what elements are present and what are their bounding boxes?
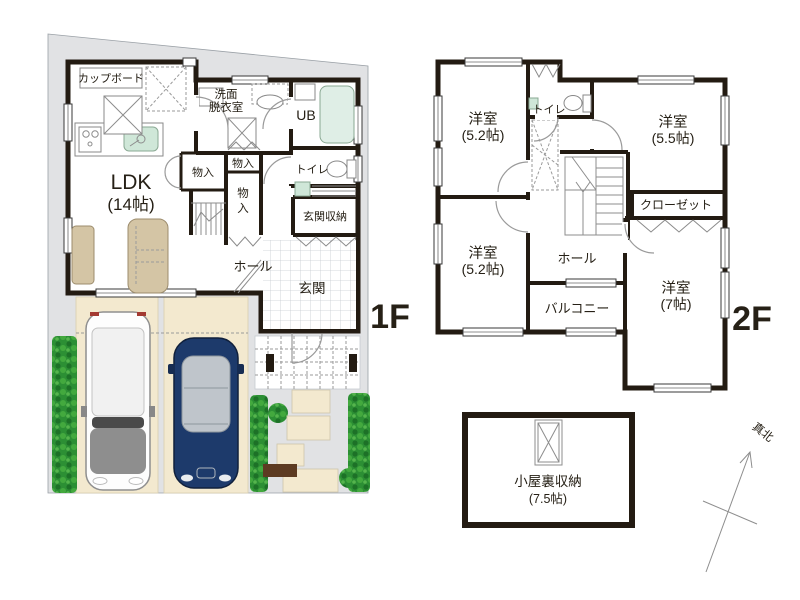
room-label-hall-2f: ホール <box>557 251 596 266</box>
room-label-2f-ne-size: (5.5帖) <box>652 130 695 146</box>
room-label-ldk: LDK <box>111 171 152 194</box>
room-label-closet-2f: クローゼット <box>640 198 712 212</box>
room-label-2f-nw: 洋室 <box>469 111 498 128</box>
floor1-plan: カップボード 洗面 脱衣室 UB 物入 物入 物 入 トイレ 玄関収納 LDK … <box>48 34 410 493</box>
floor2-plan: 洋室 (5.2帖) トイレ 洋室 (5.5帖) クローゼット 洋室 (5.2帖)… <box>434 58 772 392</box>
porch-post-right <box>349 354 357 372</box>
compass: 真北 <box>703 419 777 572</box>
room-label-closet-c1: 物 <box>237 186 249 200</box>
stove-icon <box>79 127 101 152</box>
room-label-2f-sw: 洋室 <box>469 245 498 262</box>
room-label-2f-nw-size: (5.2帖) <box>462 127 505 143</box>
sofa <box>128 219 168 293</box>
room-label-ldk-size: (14帖) <box>107 195 154 214</box>
porch-post-left <box>266 354 274 372</box>
room-label-entrance: 玄関 <box>299 280 326 296</box>
room-label-2f-ne: 洋室 <box>659 114 688 131</box>
floor-plan-canvas: カップボード 洗面 脱衣室 UB 物入 物入 物 入 トイレ 玄関収納 LDK … <box>0 0 800 600</box>
room-label-washroom-2: 脱衣室 <box>209 100 244 114</box>
small-sink-icon <box>295 182 310 196</box>
room-label-2f-sw-size: (5.2帖) <box>462 261 505 277</box>
floor-plan-page: カップボード 洗面 脱衣室 UB 物入 物入 物 入 トイレ 玄関収納 LDK … <box>0 0 800 600</box>
attic-size-label: (7.5帖) <box>529 491 567 506</box>
floor-label-1f: 1F <box>370 298 410 336</box>
sideboard <box>72 226 94 284</box>
room-label-2f-se-size: (7帖) <box>660 296 691 312</box>
bathtub-icon <box>320 86 354 143</box>
door-step <box>263 464 297 477</box>
room-label-hall-1f: ホール <box>233 259 272 274</box>
room-label-cupboard: カップボード <box>78 72 144 85</box>
bath-counter <box>295 84 315 100</box>
porch-tiles <box>255 336 360 389</box>
attic-label: 小屋裏収納 <box>514 474 582 489</box>
room-label-closet-c2: 入 <box>237 202 249 215</box>
room-label-closet-b: 物入 <box>232 156 254 170</box>
room-label-ub: UB <box>296 107 315 123</box>
stairs-2f <box>565 157 623 235</box>
room-label-closet-a: 物入 <box>192 165 214 179</box>
room-label-2f-se: 洋室 <box>662 280 691 297</box>
car-blue <box>168 338 244 488</box>
car-white-van <box>81 312 155 490</box>
compass-label: 真北 <box>750 419 777 445</box>
room-label-washroom-1: 洗面 <box>215 88 238 101</box>
room-label-toilet-1f: トイレ <box>296 164 329 176</box>
room-label-balcony: バルコニー <box>545 301 610 316</box>
attic-storage: 小屋裏収納 (7.5帖) <box>465 415 632 525</box>
room-label-entrance-storage: 玄関収納 <box>303 209 347 223</box>
room-label-toilet-2f: トイレ <box>533 104 566 116</box>
floor-label-2f: 2F <box>732 300 772 338</box>
